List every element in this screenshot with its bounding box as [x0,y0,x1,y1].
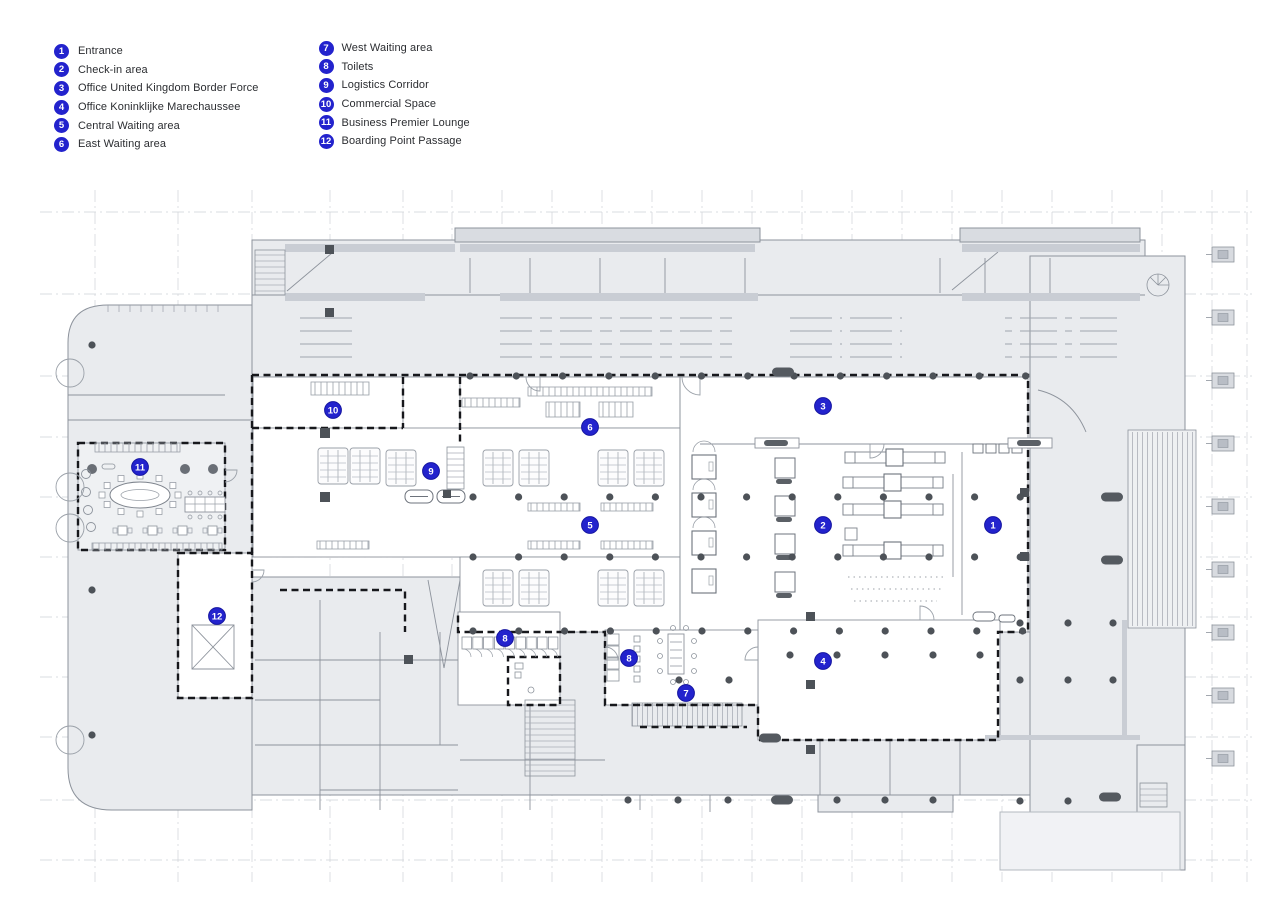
legend-item-5: 5Central Waiting area [54,116,259,135]
plan-marker-3: 3 [815,398,832,415]
legend-item-label: Commercial Space [342,98,437,110]
legend-column-2: 7West Waiting area8Toilets9Logistics Cor… [319,39,470,154]
legend: 1Entrance2Check-in area3Office United Ki… [54,42,470,154]
legend-item-7: 7West Waiting area [319,39,470,58]
svg-text:5: 5 [587,520,593,531]
legend-item-number: 9 [319,78,334,93]
floor-plan-page: 1Entrance2Check-in area3Office United Ki… [0,0,1280,905]
plan-marker-8: 8 [497,630,514,647]
legend-item-label: Logistics Corridor [342,79,429,91]
plan-marker-2: 2 [815,517,832,534]
legend-item-number: 2 [54,62,69,77]
legend-item-10: 10Commercial Space [319,95,470,114]
legend-item-label: Office United Kingdom Border Force [78,82,259,94]
legend-item-12: 12Boarding Point Passage [319,132,470,151]
plan-marker-1: 1 [985,517,1002,534]
legend-item-number: 12 [319,134,334,149]
svg-text:9: 9 [428,466,433,477]
legend-item-number: 10 [319,97,334,112]
plan-marker-8: 8 [621,650,638,667]
legend-item-label: Central Waiting area [78,120,180,132]
plan-marker-10: 10 [325,402,342,419]
svg-text:8: 8 [502,633,507,644]
legend-item-label: East Waiting area [78,138,166,150]
legend-item-label: Toilets [342,61,374,73]
svg-text:2: 2 [820,520,825,531]
legend-item-label: Business Premier Lounge [342,117,470,129]
svg-text:6: 6 [587,422,592,433]
plan-marker-9: 9 [423,463,440,480]
legend-item-number: 3 [54,81,69,96]
legend-item-11: 11Business Premier Lounge [319,113,470,132]
legend-item-number: 6 [54,137,69,152]
legend-item-number: 4 [54,100,69,115]
legend-item-label: Check-in area [78,64,148,76]
legend-column-1: 1Entrance2Check-in area3Office United Ki… [54,42,259,154]
svg-text:7: 7 [683,688,688,699]
plan-marker-12: 12 [209,608,226,625]
plan-marker-11: 11 [132,459,149,476]
legend-item-8: 8Toilets [319,58,470,77]
svg-text:11: 11 [135,462,146,473]
legend-item-label: West Waiting area [342,42,433,54]
plan-marker-7: 7 [678,685,695,702]
plan-marker-4: 4 [815,653,832,670]
svg-text:8: 8 [626,653,631,664]
legend-item-9: 9Logistics Corridor [319,76,470,95]
legend-item-number: 8 [319,59,334,74]
svg-text:12: 12 [212,611,223,622]
legend-item-1: 1Entrance [54,42,259,61]
legend-item-label: Office Koninklijke Marechaussee [78,101,240,113]
legend-item-number: 11 [319,115,334,130]
legend-item-label: Entrance [78,45,123,57]
legend-item-label: Boarding Point Passage [342,135,462,147]
plan-marker-5: 5 [582,517,599,534]
svg-text:1: 1 [990,520,996,531]
legend-item-4: 4Office Koninklijke Marechaussee [54,98,259,117]
legend-item-number: 1 [54,44,69,59]
legend-item-3: 3Office United Kingdom Border Force [54,79,259,98]
svg-text:3: 3 [820,401,825,412]
svg-text:4: 4 [820,656,826,667]
svg-text:10: 10 [328,405,339,416]
plan-marker-6: 6 [582,419,599,436]
legend-item-2: 2Check-in area [54,61,259,80]
legend-item-number: 7 [319,41,334,56]
legend-item-number: 5 [54,118,69,133]
legend-item-6: 6East Waiting area [54,135,259,154]
